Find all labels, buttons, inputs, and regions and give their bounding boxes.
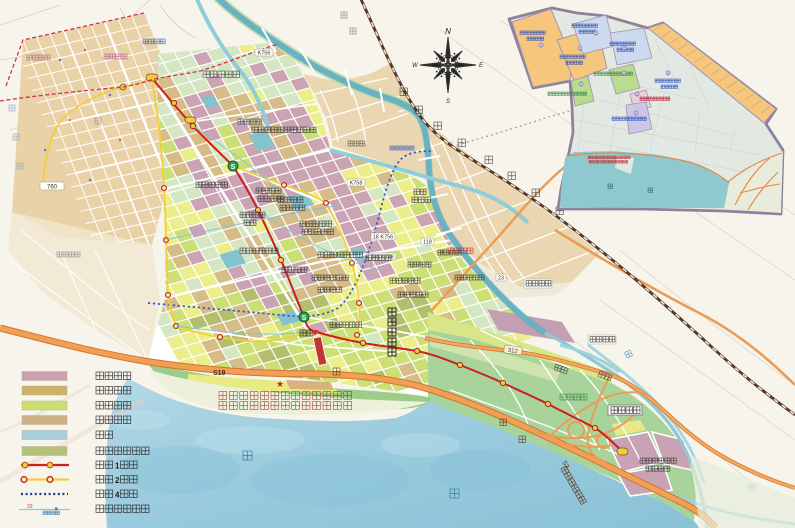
svg-text:★: ★ bbox=[276, 379, 284, 389]
svg-text:18 K756: 18 K756 bbox=[373, 235, 394, 241]
svg-text:23: 23 bbox=[498, 276, 504, 282]
svg-text:S19: S19 bbox=[213, 370, 226, 377]
svg-text:2: 2 bbox=[115, 476, 120, 485]
svg-text:1: 1 bbox=[115, 462, 120, 471]
svg-text:K756: K756 bbox=[258, 51, 271, 57]
svg-text:S: S bbox=[446, 99, 450, 105]
svg-text:S: S bbox=[302, 315, 307, 322]
svg-text:S: S bbox=[231, 164, 236, 171]
svg-text:★: ★ bbox=[440, 249, 445, 256]
svg-text:K758: K758 bbox=[350, 181, 363, 187]
svg-text:4: 4 bbox=[115, 491, 120, 500]
svg-text:760: 760 bbox=[47, 185, 58, 191]
svg-text:29: 29 bbox=[27, 504, 33, 510]
svg-text:N: N bbox=[445, 27, 451, 36]
svg-text:118: 118 bbox=[423, 240, 432, 246]
